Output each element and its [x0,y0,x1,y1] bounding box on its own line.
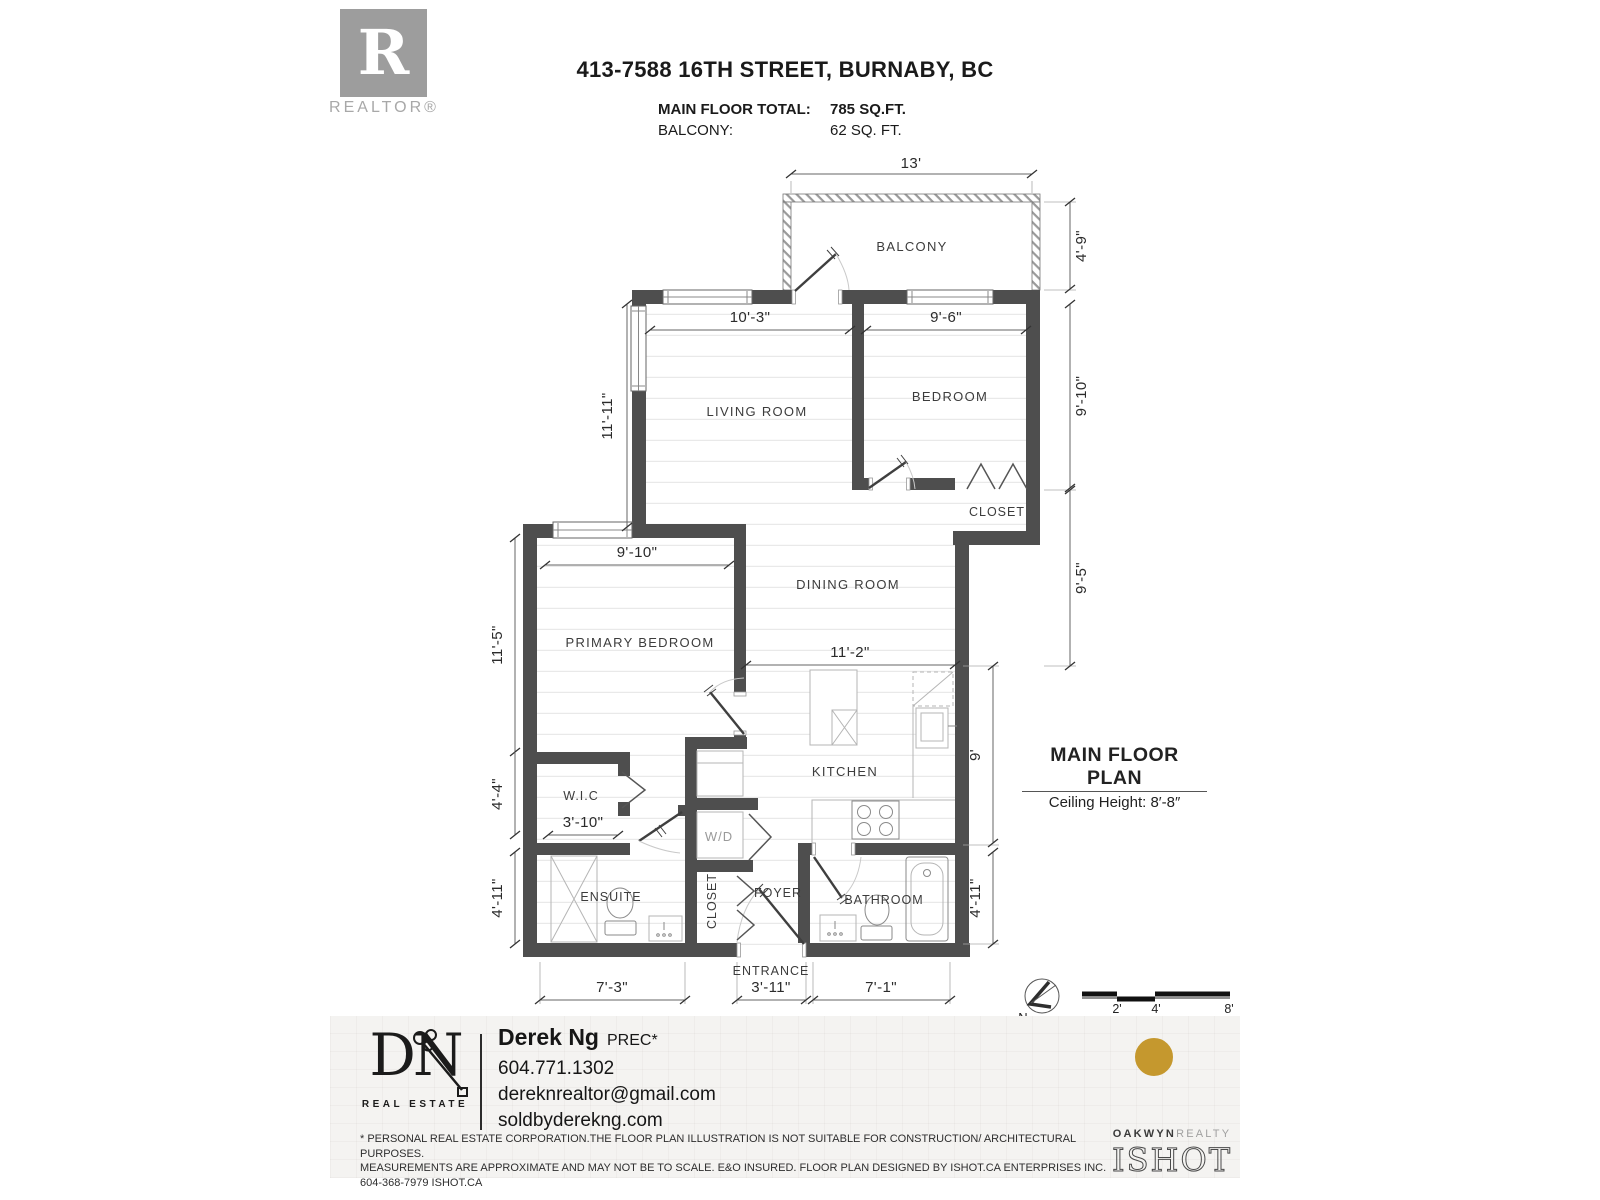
label-washer-dryer: W/D [705,829,733,844]
scale-bar: 2' 4' 8' [1082,992,1234,1017]
stat-value: 62 SQ. FT. [830,122,902,139]
oakwyn-name: OAKWYN [1113,1128,1176,1140]
scale-8ft: 8' [1224,1002,1233,1016]
label-wic: W.I.C [563,789,599,803]
realtor-logo: R [340,9,427,97]
dim-bedroom-length: 9'-10" [1073,376,1090,417]
realtor-logo-letter: R [358,22,410,84]
scale-2ft: 2' [1112,1002,1121,1016]
dim-dining-width: 11'-2" [830,644,870,661]
label-entrance: ENTRANCE [733,964,810,978]
label-foyer-closet: CLOSET [705,873,719,929]
stat-label: BALCONY: [658,122,830,139]
plan-title-block: MAIN FLOOR PLAN Ceiling Height: 8′-8″ [1022,744,1207,811]
realtor-logo-label: REALTOR® [328,99,440,117]
agent-name: Derek Ng [498,1024,599,1050]
page-title: 413-7588 16TH STREET, BURNABY, BC [435,57,1135,83]
label-dining-room: DINING ROOM [796,577,900,592]
disclaimer-line: MEASUREMENTS ARE APPROXIMATE AND MAY NOT… [360,1161,1130,1176]
dn-logo-monogram: DN [348,1024,482,1088]
label-living-room: LIVING ROOM [707,404,808,419]
dim-entrance-width: 3'-11" [751,979,791,996]
kitchen-island [810,670,857,745]
label-bedroom: BEDROOM [912,389,988,404]
ishot-text: ISHOT [1112,1141,1232,1179]
footer: DN REAL ESTATE Derek NgPREC* 604.771.130… [330,1016,1240,1178]
agent-info: Derek NgPREC* 604.771.1302 dereknrealtor… [498,1024,716,1132]
stat-label: MAIN FLOOR TOTAL: [658,101,830,118]
dim-ensuite-width: 7'-3" [596,979,628,996]
oakwyn-logo-icon [1135,1038,1173,1076]
label-kitchen: KITCHEN [812,764,878,779]
floor-plan-drawing: 13' 4'-9" 9'-10" 9'-5" 11'-11" 10'-3" 9'… [480,150,1250,1020]
fridge [697,751,743,796]
plan-title: MAIN FLOOR PLAN [1022,744,1207,792]
floor-plan-flyer: R REALTOR® 413-7588 16TH STREET, BURNABY… [0,0,1600,1200]
disclaimer-line: * PERSONAL REAL ESTATE CORPORATION.THE F… [360,1132,1130,1161]
dim-living-length: 11'-11" [599,392,616,439]
agent-phone: 604.771.1302 [498,1058,716,1080]
label-primary-bedroom: PRIMARY BEDROOM [565,635,714,650]
dim-bathroom-length: 4'-11" [967,878,984,918]
ceiling-height: Ceiling Height: 8′-8″ [1022,794,1207,811]
agent-email: dereknrealtor@gmail.com [498,1084,716,1106]
area-stats: MAIN FLOOR TOTAL: 785 SQ.FT. BALCONY: 62… [658,101,906,143]
dim-wic-width: 3'-10" [563,814,604,831]
dim-primary-length: 11'-5" [489,625,506,665]
dim-closet-side: 9'-5" [1073,562,1090,594]
stat-balcony: BALCONY: 62 SQ. FT. [658,122,906,139]
dim-wic-length: 4'-4" [489,778,506,810]
oakwyn-label: OAKWYNREALTY [1092,1128,1252,1140]
agent-website: soldbyderekng.com [498,1110,716,1132]
dim-living-width: 10'-3" [730,309,771,326]
dim-ensuite-length: 4'-11" [489,878,506,918]
dim-bathroom-width: 7'-1" [865,979,897,996]
stat-main-floor: MAIN FLOOR TOTAL: 785 SQ.FT. [658,101,906,118]
ishot-logo: ISHOT [1112,1140,1232,1180]
disclaimer-line: 604-368-7979 ISHOT.CA [360,1176,1130,1191]
dim-balcony-width: 13' [901,155,922,172]
dn-logo-name: REAL ESTATE [348,1099,482,1110]
footer-divider [480,1034,482,1130]
dim-bedroom-width: 9'-6" [930,309,962,326]
label-bedroom-closet: CLOSET [969,505,1025,519]
north-compass: N [1018,979,1059,1020]
dim-balcony-depth: 4'-9" [1073,230,1090,262]
dim-primary-width: 9'-10" [617,544,658,561]
stat-value: 785 SQ.FT. [830,101,906,118]
disclaimer: * PERSONAL REAL ESTATE CORPORATION.THE F… [360,1132,1130,1190]
label-balcony: BALCONY [876,239,947,254]
label-ensuite: ENSUITE [580,890,641,904]
oakwyn-suffix: REALTY [1176,1128,1231,1140]
label-bathroom: BATHROOM [844,893,923,907]
label-foyer: FOYER [754,886,802,900]
scale-4ft: 4' [1151,1002,1160,1016]
agent-designation: PREC* [607,1032,658,1049]
dim-kitchen-side: 9' [967,749,984,761]
